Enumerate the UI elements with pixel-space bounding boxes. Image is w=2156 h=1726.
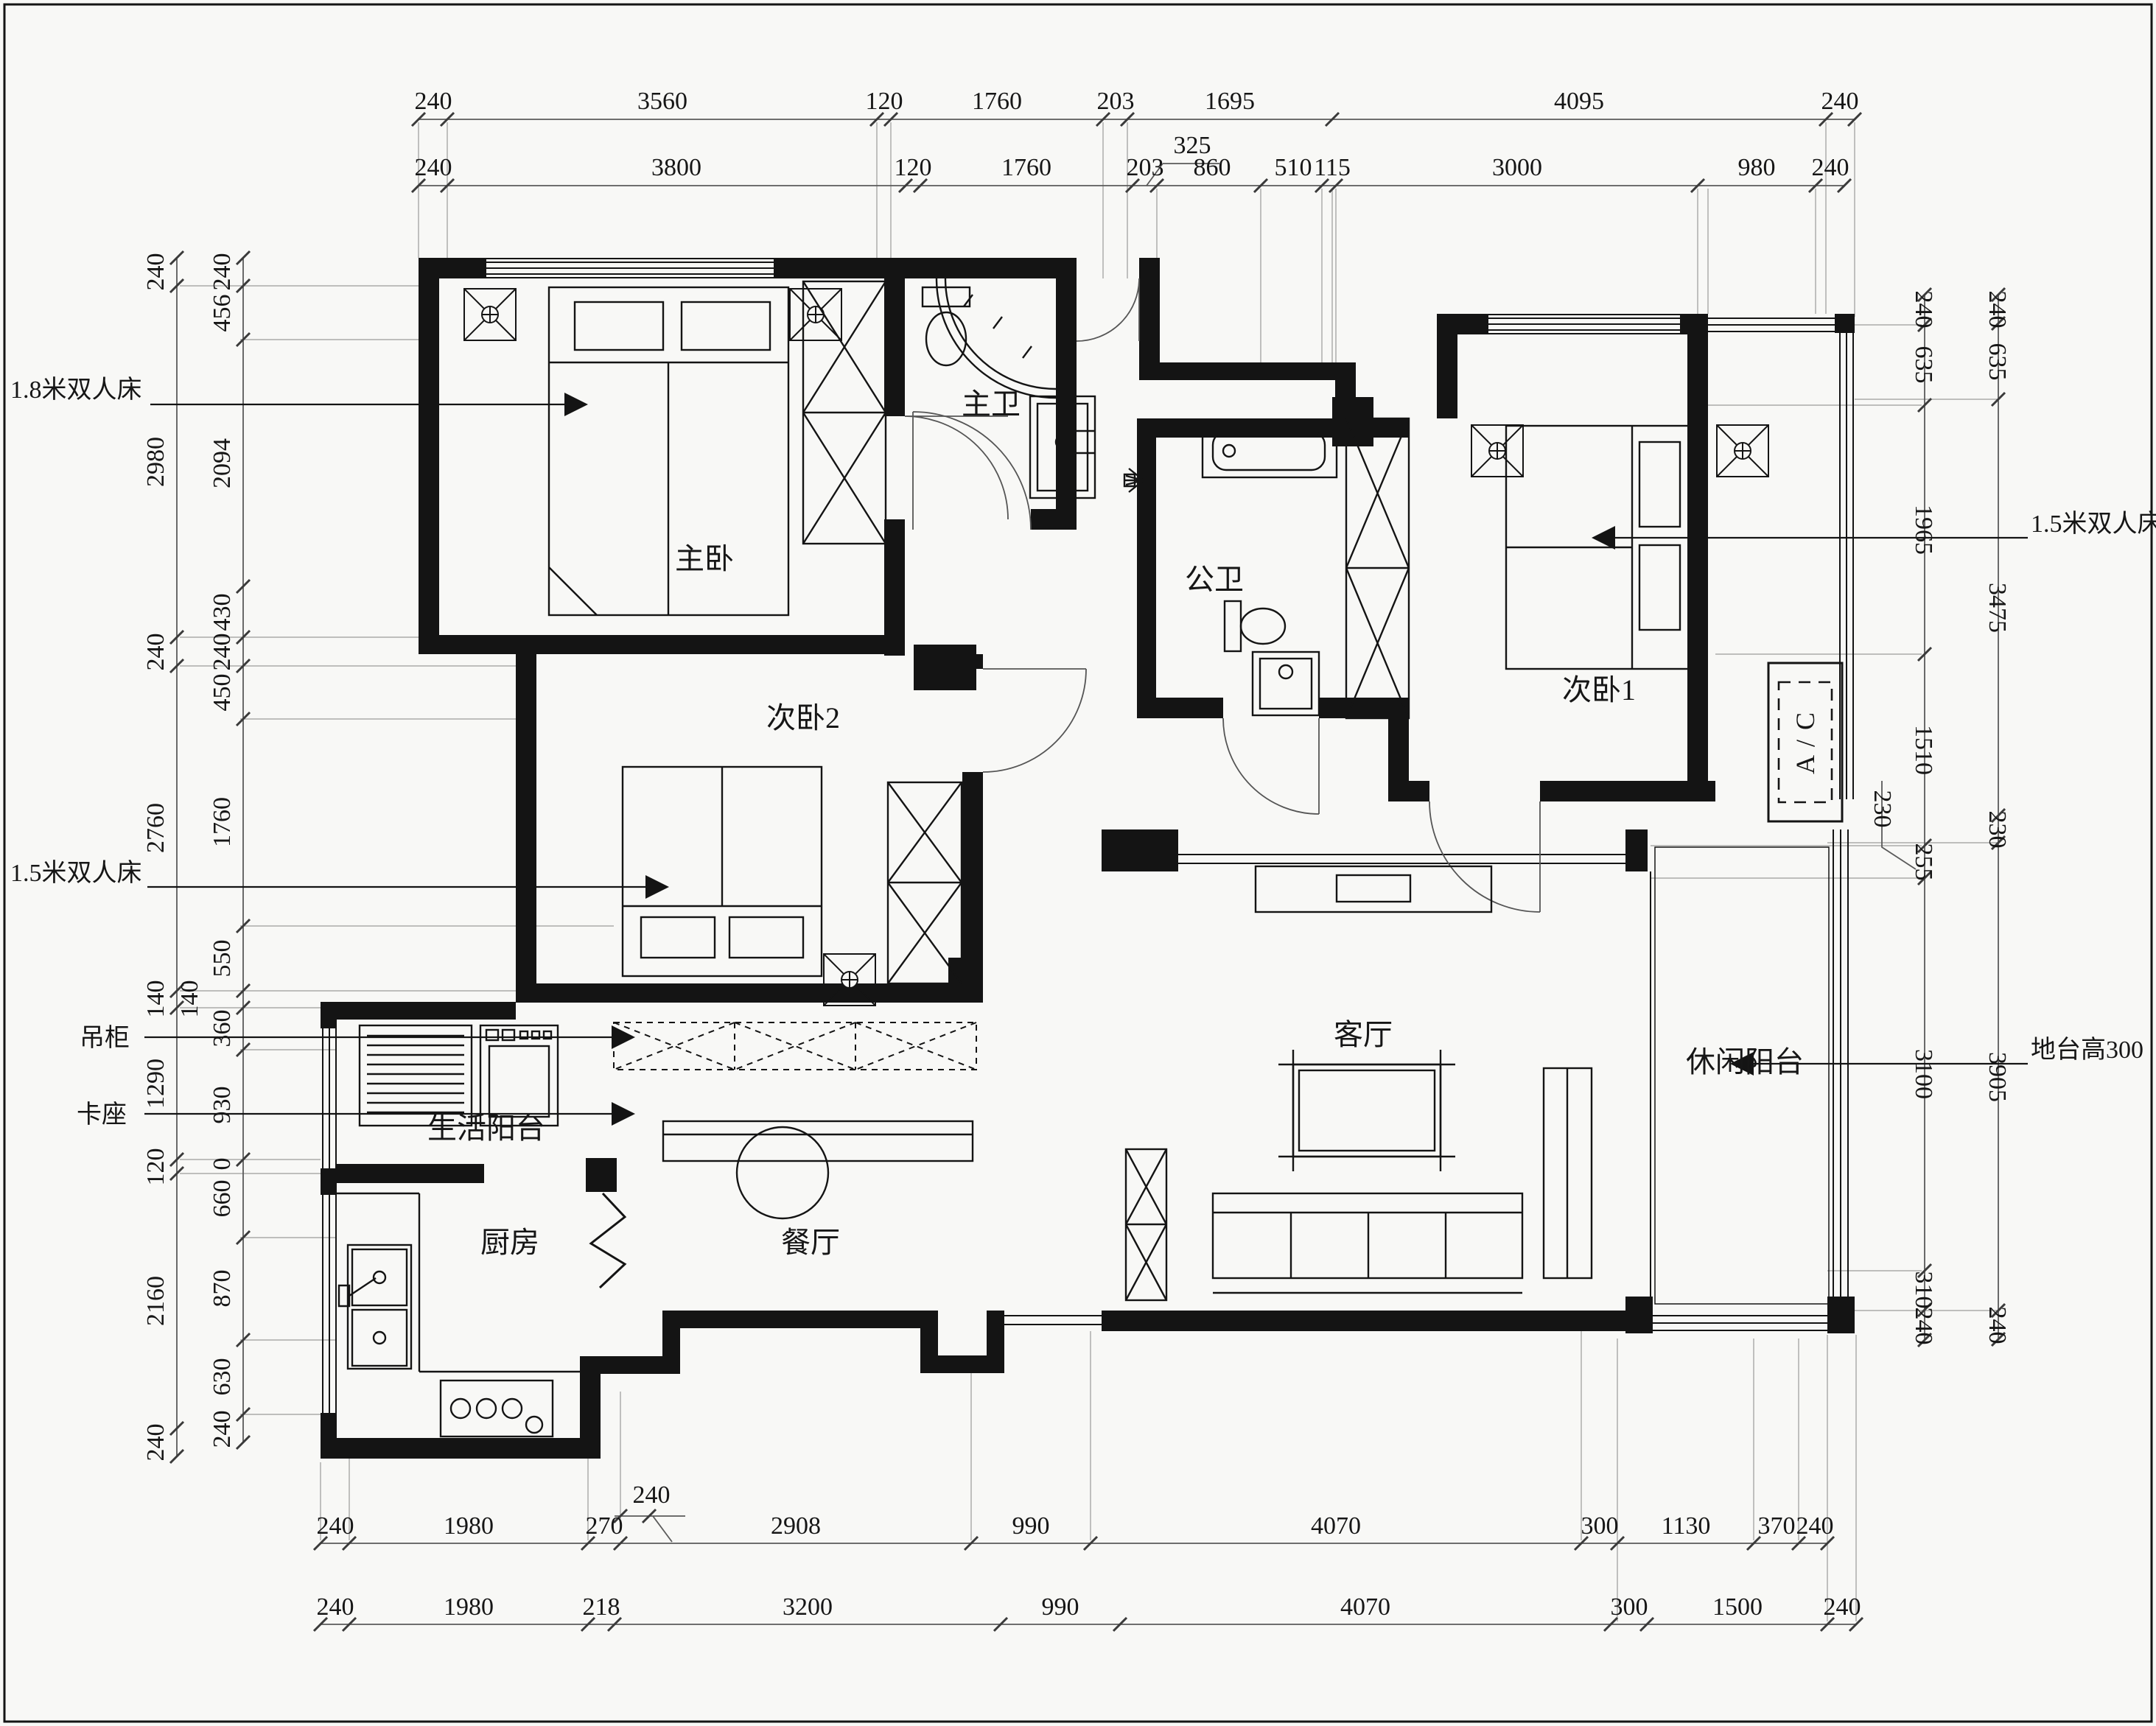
dim-label: 4095: [1554, 88, 1604, 115]
dim-label: 450: [209, 674, 236, 712]
annotation-hanging-cabinet: 吊柜: [80, 1025, 130, 1052]
dim-label: 1980: [444, 1593, 494, 1621]
dim-label: 240: [1910, 291, 1937, 329]
annotation-bed15-left: 1.5米双人床: [10, 859, 142, 887]
floor-plan-canvas: 240 3560 120 1760 203 1695 4095 240 240 …: [0, 0, 2156, 1726]
arrow-icon: [1592, 526, 1615, 550]
dim-label: 255: [1910, 843, 1937, 881]
folding-door: [591, 1193, 625, 1288]
hanging-cabinet: [614, 1022, 976, 1070]
dim-label: 4070: [1340, 1593, 1390, 1621]
dim-label: 240: [1824, 1593, 1861, 1621]
dim-label: 2908: [771, 1512, 821, 1540]
dim-label: 3800: [651, 154, 701, 181]
dim-label: 510: [1275, 154, 1312, 181]
room-labels: 主卧 主卫 公卫 次卧1 次卧2 客厅 休闲阳台 生活阳台 餐厅 厨房: [427, 387, 1804, 1259]
dim-label-offset-325: 325: [1174, 132, 1211, 159]
dim-label: 240: [1984, 291, 2011, 329]
annotation-bed18: 1.8米双人床: [10, 376, 142, 404]
dim-label: 1290: [142, 1059, 169, 1109]
room-label-leisure-balcony: 休闲阳台: [1686, 1045, 1804, 1078]
dim-label: 3000: [1492, 154, 1542, 181]
dim-label: 240: [415, 154, 452, 181]
dim-label: 930: [209, 1087, 236, 1124]
dim-label: 240: [209, 253, 236, 291]
dim-label: 218: [583, 1593, 620, 1621]
arrow-icon: [612, 1102, 635, 1126]
wardrobe-hall: [1346, 418, 1409, 718]
dim-label: 240: [415, 88, 452, 115]
dim-label: 0: [209, 1158, 236, 1171]
dim-label-mid-140: 140: [176, 980, 203, 1018]
stove: [441, 1381, 553, 1436]
room-label-bedroom2: 次卧2: [766, 701, 840, 734]
dim-label: 240: [209, 634, 236, 671]
dim-label: 300: [1581, 1512, 1619, 1540]
dim-label: 240: [1796, 1512, 1834, 1540]
dining-table: [737, 1127, 828, 1218]
room-label-master-bath: 主卫: [962, 387, 1021, 421]
dim-label: 370: [1758, 1512, 1796, 1540]
dim-label: 270: [586, 1512, 623, 1540]
dim-label: 1695: [1205, 88, 1255, 115]
room-label-living: 客厅: [1334, 1018, 1393, 1051]
dim-label: 456: [209, 295, 236, 332]
balcony-cabinet: [480, 1025, 558, 1126]
booth-seat: [663, 1121, 973, 1161]
dim-label: 660: [209, 1180, 236, 1218]
dimension-lines: [177, 119, 1998, 1624]
dim-label: 3100: [1910, 1049, 1937, 1099]
dim-label: 990: [1012, 1512, 1050, 1540]
dim-label: 120: [866, 88, 903, 115]
dim-label: 1965: [1910, 505, 1937, 555]
sofa: [1213, 1068, 1592, 1293]
toilet-public: [1225, 601, 1285, 651]
dim-label: 3905: [1984, 1052, 2011, 1102]
room-label-public-bath: 公卫: [1185, 563, 1244, 596]
dim-label: 240: [317, 1512, 354, 1540]
room-label-dining: 餐厅: [781, 1226, 840, 1259]
dim-label: 635: [1910, 346, 1937, 384]
dim-label: 310: [1910, 1271, 1937, 1309]
dim-label: 1500: [1712, 1593, 1763, 1621]
dim-label: 630: [209, 1358, 236, 1396]
dim-label: 4070: [1311, 1512, 1361, 1540]
shower: [937, 278, 1056, 398]
coffee-table: [1278, 1050, 1455, 1171]
dim-label: 635: [1984, 343, 2011, 381]
dim-label: 2980: [142, 437, 169, 487]
ac-unit-label: A / C: [1791, 711, 1820, 774]
dim-label: 3475: [1984, 583, 2011, 633]
arrow-icon: [645, 875, 669, 899]
bed-master: [549, 287, 788, 615]
kitchen-counter: [337, 1193, 580, 1372]
extension-guides: [180, 122, 1998, 1621]
drawing-border: [4, 4, 2152, 1722]
dim-label: 240: [209, 1411, 236, 1448]
dim-label: 240: [1984, 1307, 2011, 1344]
dim-label: 203: [1127, 154, 1164, 181]
dim-label-offset-240: 240: [633, 1481, 671, 1509]
annotation-bed15-right: 1.5米双人床: [2031, 510, 2156, 538]
dim-label: 1760: [1001, 154, 1051, 181]
dim-label: 240: [1910, 1308, 1937, 1345]
dim-label: 240: [1821, 88, 1859, 115]
dim-label: 550: [209, 940, 236, 978]
annotation-platform: 地台高300: [2031, 1036, 2143, 1064]
floor-plan-page: 240 3560 120 1760 203 1695 4095 240 240 …: [0, 0, 2156, 1726]
bathtub: [1203, 424, 1337, 477]
bed-bedroom2: [623, 767, 822, 976]
room-label-master-bedroom: 主卧: [675, 542, 734, 575]
arrow-icon: [564, 393, 588, 416]
dim-label: 1760: [972, 88, 1022, 115]
dim-label: 300: [1611, 1593, 1648, 1621]
dim-label: 140: [142, 980, 169, 1018]
dim-label: 1980: [444, 1512, 494, 1540]
dim-label: 240: [142, 634, 169, 671]
dim-label: 2094: [209, 438, 236, 488]
dim-label: 240: [1812, 154, 1849, 181]
bed-bedroom1: [1506, 426, 1690, 669]
vanity-public: [1253, 652, 1319, 715]
dim-label: 2760: [142, 803, 169, 853]
dim-label: 3200: [783, 1593, 833, 1621]
wardrobe-bedroom2: [888, 782, 962, 983]
dim-label: 990: [1042, 1593, 1079, 1621]
dim-label-offset-230: 230: [1869, 790, 1896, 828]
room-label-kitchen: 厨房: [480, 1226, 539, 1259]
cabinet-living: [1126, 1149, 1166, 1300]
room-label-bedroom1: 次卧1: [1562, 673, 1636, 706]
dim-label: 360: [209, 1010, 236, 1048]
dim-label: 1130: [1662, 1512, 1711, 1540]
dim-label: 203: [1097, 88, 1135, 115]
dim-label: 230: [1984, 811, 2011, 849]
dim-label: 980: [1738, 154, 1776, 181]
dim-label: 240: [142, 253, 169, 291]
dim-label: 240: [317, 1593, 354, 1621]
dim-label: 240: [142, 1424, 169, 1462]
dim-label: 115: [1314, 154, 1351, 181]
arrow-icon: [612, 1025, 635, 1049]
dim-label: 3560: [637, 88, 687, 115]
dim-label: 1510: [1910, 725, 1937, 775]
furniture: [337, 278, 1842, 1436]
dim-label: 1760: [209, 797, 236, 847]
dim-label: 120: [895, 154, 932, 181]
annotation-booth-seat: 卡座: [77, 1101, 127, 1129]
dim-label: 2160: [142, 1276, 169, 1326]
dim-label: 430: [209, 594, 236, 631]
dim-label: 870: [209, 1270, 236, 1308]
dim-label: 120: [142, 1148, 169, 1186]
washing-machine: [360, 1025, 472, 1126]
room-label-service-balcony: 生活阳台: [427, 1112, 545, 1145]
